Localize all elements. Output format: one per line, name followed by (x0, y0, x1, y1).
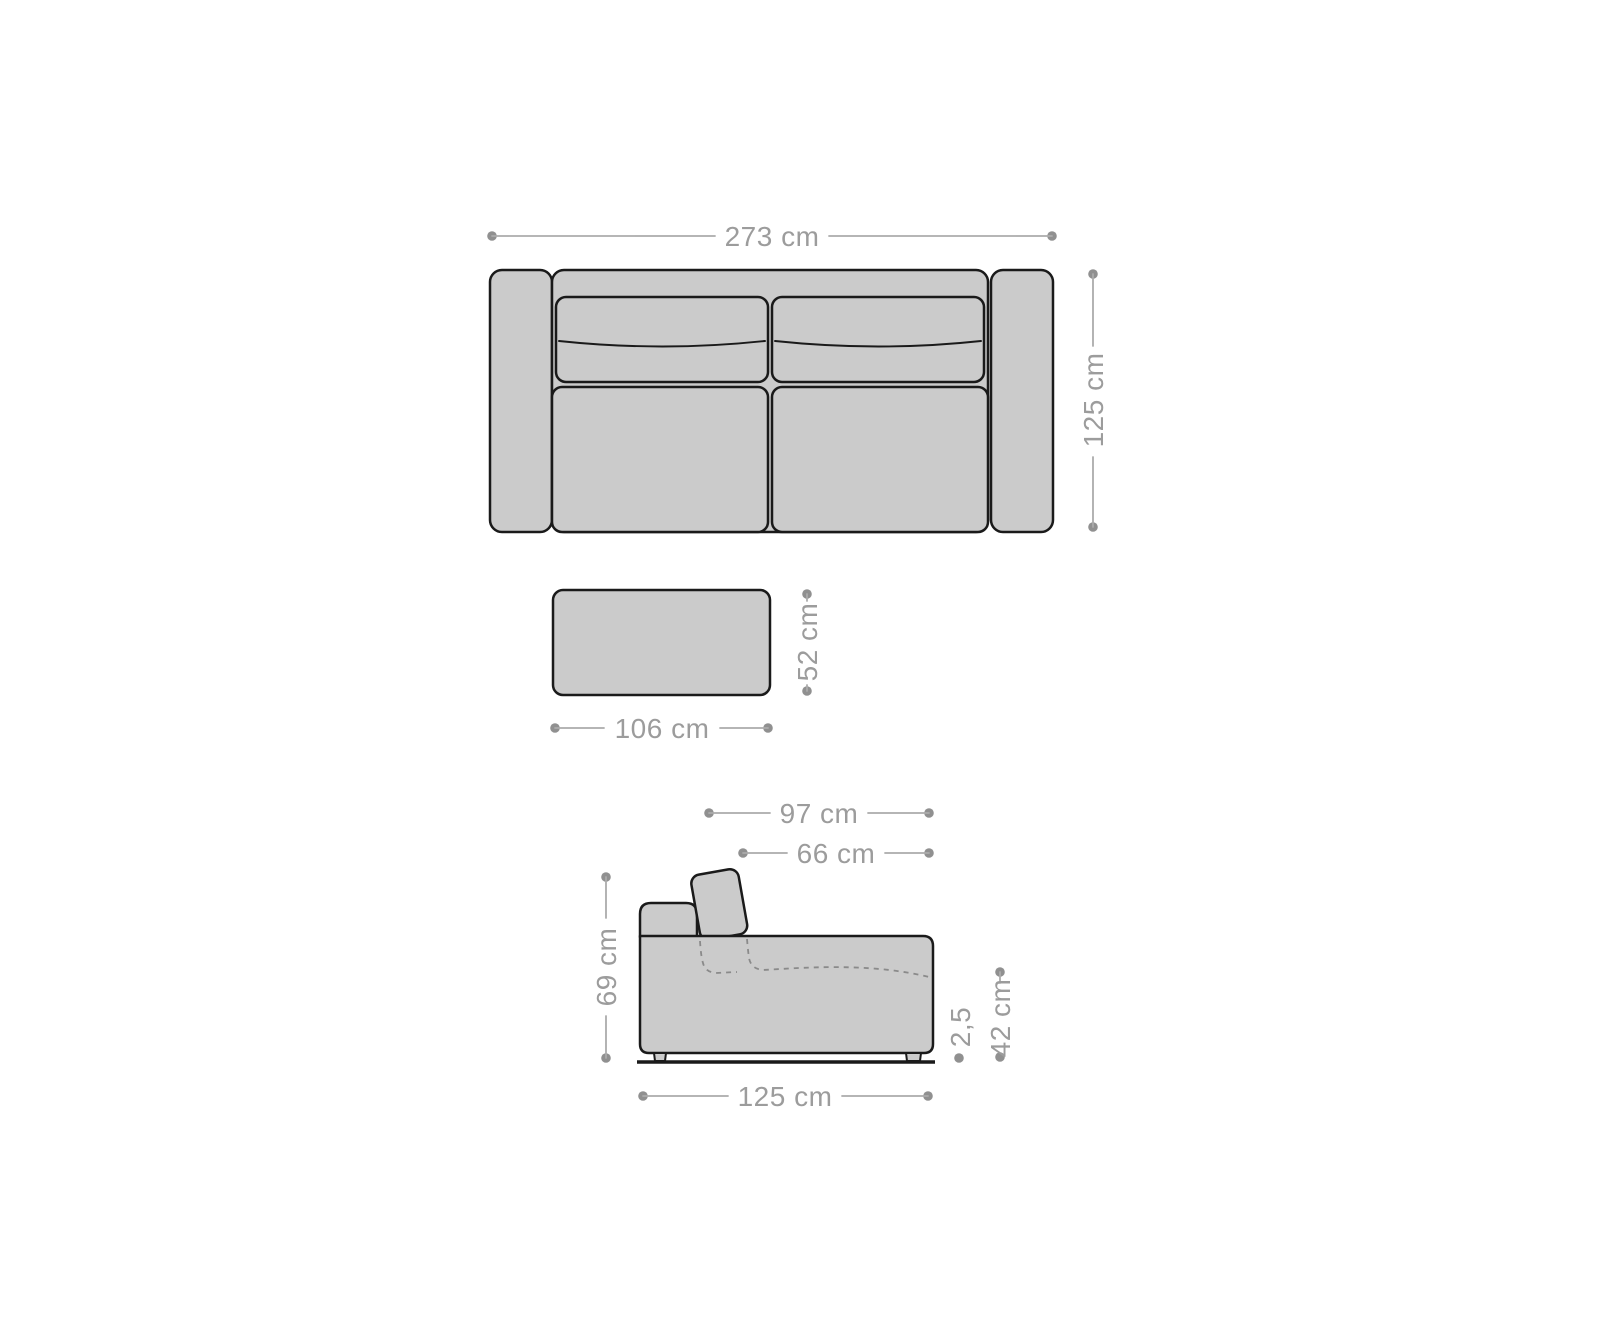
dim-label-back-height: 69 cm (591, 928, 622, 1007)
dim-label-total-depth: 125 cm (738, 1081, 833, 1112)
dimension-seat-depth: 66 cm (738, 838, 934, 869)
side-view-foot-right (906, 1053, 921, 1061)
dimension-diagram: 273 cm 125 cm 52 cm 106 cm (0, 0, 1600, 1333)
dim-label-seat-depth: 66 cm (797, 838, 876, 869)
dimension-ottoman-depth: 52 cm (792, 589, 823, 696)
dim-dot (954, 1053, 964, 1063)
top-view-seat-right (772, 387, 988, 532)
top-view-seat-left (552, 387, 768, 532)
dimension-seat-height: 42 cm (985, 967, 1016, 1062)
side-view-body (640, 936, 933, 1053)
dim-label-sofa-depth: 125 cm (1078, 353, 1109, 448)
dim-label-seat-height: 42 cm (985, 979, 1016, 1058)
dim-label-ottoman-depth: 52 cm (792, 603, 823, 682)
top-view-armrest-left (490, 270, 552, 532)
dim-label-sofa-width: 273 cm (725, 221, 820, 252)
sofa-top-view (490, 270, 1053, 532)
ottoman-body (553, 590, 770, 695)
dim-label-foot-height: 2,5 (945, 1007, 976, 1047)
dimension-back-height: 69 cm (591, 872, 622, 1063)
dimension-total-depth: 125 cm (638, 1081, 933, 1112)
side-view-back-panel (640, 903, 697, 937)
dim-label-depth-with-headrest: 97 cm (780, 798, 859, 829)
dimension-sofa-depth: 125 cm (1078, 269, 1109, 532)
ottoman-top-view (553, 590, 770, 695)
dim-label-ottoman-width: 106 cm (615, 713, 710, 744)
side-view-foot-left (654, 1053, 666, 1061)
top-view-back-cushion-left (556, 297, 768, 382)
side-view-back-cushion (690, 868, 749, 941)
diagram-svg: 273 cm 125 cm 52 cm 106 cm (0, 0, 1600, 1333)
dimension-ottoman-width: 106 cm (550, 713, 773, 744)
sofa-side-view (637, 868, 935, 1062)
dimension-depth-with-headrest: 97 cm (704, 798, 934, 829)
top-view-armrest-right (991, 270, 1053, 532)
dimension-sofa-width: 273 cm (487, 221, 1057, 252)
top-view-back-cushion-right (772, 297, 984, 382)
dimension-foot-height: 2,5 (945, 1007, 976, 1063)
